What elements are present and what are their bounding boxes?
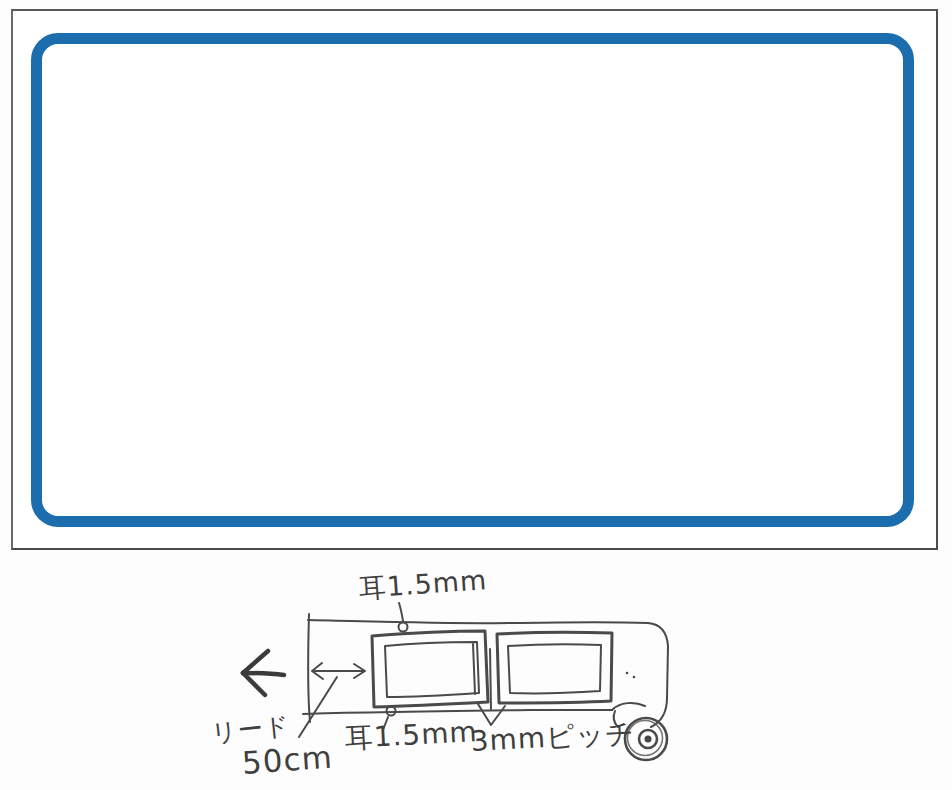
scanned-sheet: 耳1.5mm 耳1.5mm 3mmピッチ リード 50cm — [0, 0, 952, 790]
label-frame-1 — [372, 631, 488, 707]
label1-inner-double-edge — [473, 644, 475, 694]
label1-inner-rect — [385, 642, 479, 697]
pitch-gap-stem — [490, 649, 491, 709]
strip-bottom-edge — [303, 710, 612, 714]
label-blue-border — [31, 33, 914, 527]
label-frame-2 — [497, 632, 612, 703]
label2-inner-rect — [508, 644, 601, 693]
continuation-dot — [633, 676, 636, 679]
left-arrow-barb-bottom — [243, 673, 265, 695]
roll-center-dot — [645, 736, 652, 743]
left-arrow-barb-top — [243, 651, 268, 673]
continuation-dot — [626, 672, 629, 675]
top-margin-leader-line — [399, 603, 403, 621]
lead-leader-line — [299, 677, 337, 737]
left-arrow-icon — [243, 651, 284, 695]
double-headed-arrow-icon — [312, 663, 365, 679]
strip-left-edge — [308, 614, 310, 722]
top-margin-marker-circle — [399, 623, 408, 632]
bottom-margin-annotation: 耳1.5mm — [344, 718, 478, 753]
roll-wrap-arc — [612, 703, 645, 710]
left-arrow-tail — [243, 673, 284, 675]
pitch-annotation: 3mmピッチ — [470, 719, 636, 756]
lead-length-annotation: 50cm — [241, 742, 334, 779]
